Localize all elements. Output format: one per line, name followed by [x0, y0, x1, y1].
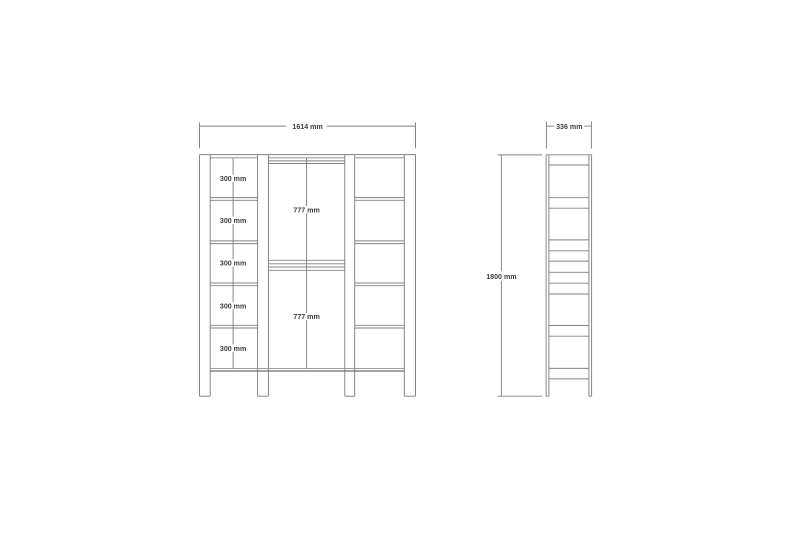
svg-text:300 mm: 300 mm [220, 345, 246, 353]
svg-text:300 mm: 300 mm [220, 302, 246, 310]
svg-text:1800 mm: 1800 mm [486, 273, 516, 281]
svg-text:336 mm: 336 mm [556, 123, 582, 131]
svg-text:300 mm: 300 mm [220, 260, 246, 268]
svg-text:777 mm: 777 mm [293, 313, 319, 321]
svg-text:777 mm: 777 mm [293, 206, 319, 214]
svg-text:300 mm: 300 mm [220, 175, 246, 183]
svg-text:1614 mm: 1614 mm [292, 123, 322, 131]
svg-text:300 mm: 300 mm [220, 217, 246, 225]
